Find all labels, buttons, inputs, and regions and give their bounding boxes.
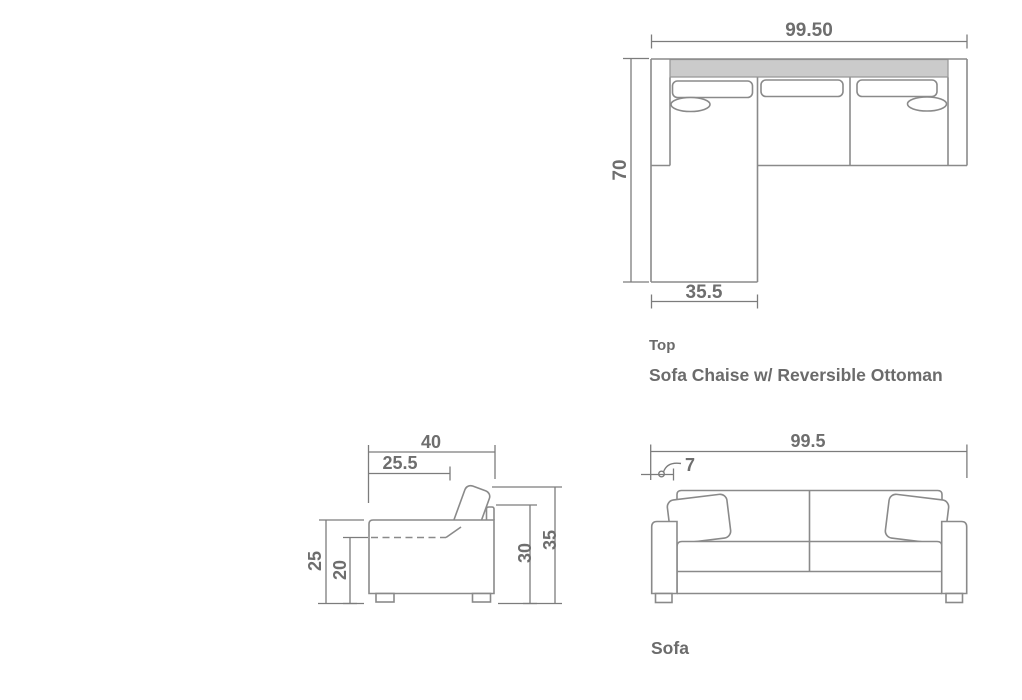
toss-pillow-left — [671, 98, 710, 112]
dim-side-back-height: 30 — [496, 505, 537, 604]
front-view-feet — [656, 594, 963, 603]
dim-label-seat-depth: 25.5 — [382, 453, 417, 473]
dim-label-overall-height: 35 — [540, 530, 560, 550]
leader-curve — [664, 463, 682, 472]
top-view-toss-pillows — [671, 97, 947, 112]
dim-front-overall-width: 99.5 — [651, 431, 967, 480]
top-view: 99.50 70 35.5 Top Sofa Chaise w/ Reversi… — [610, 20, 967, 385]
dim-label-top-depth: 70 — [610, 159, 631, 180]
side-foot-front — [376, 594, 394, 603]
dim-top-chaise-width: 35.5 — [652, 282, 758, 309]
dim-label-arm-height: 25 — [305, 551, 325, 571]
dim-label-back-height: 30 — [515, 543, 535, 563]
side-view: 40 25.5 25 20 30 — [305, 432, 562, 604]
dim-side-seat-depth: 25.5 — [369, 453, 451, 481]
side-view-feet — [376, 594, 491, 603]
front-view: 99.5 7 Sofa — [641, 431, 967, 658]
dim-label-arm-width: 7 — [685, 455, 695, 475]
dim-side-seat-height: 20 — [330, 538, 368, 604]
furniture-dimension-drawing: 99.50 70 35.5 Top Sofa Chaise w/ Reversi… — [0, 0, 1022, 700]
front-foot-right — [946, 594, 963, 603]
top-view-caption: Top — [649, 337, 675, 354]
side-foot-back — [473, 594, 491, 603]
toss-pillow-right — [908, 97, 947, 111]
back-cushion-right — [857, 80, 937, 97]
side-view-back-frame — [487, 507, 495, 520]
top-view-back-panel — [670, 60, 948, 78]
back-cushion-left — [673, 81, 753, 98]
dim-label-side-depth: 40 — [421, 432, 441, 452]
back-cushion-middle — [761, 80, 843, 97]
front-view-caption: Sofa — [651, 638, 689, 658]
front-pillow-right — [885, 494, 950, 545]
dim-label-front-width: 99.5 — [790, 431, 825, 451]
dim-front-arm-width: 7 — [641, 455, 695, 481]
drawing-svg: 99.50 70 35.5 Top Sofa Chaise w/ Reversi… — [0, 0, 1022, 700]
side-view-body — [369, 520, 494, 594]
dim-top-overall-depth: 70 — [610, 59, 649, 283]
dim-top-overall-width: 99.50 — [652, 20, 968, 49]
front-view-base — [677, 572, 942, 594]
top-view-back-cushions — [673, 80, 938, 98]
front-view-arm-left — [652, 522, 677, 594]
front-view-arm-right — [942, 522, 967, 594]
dim-label-top-width: 99.50 — [785, 20, 833, 41]
front-foot-left — [656, 594, 673, 603]
dim-label-seat-height: 20 — [330, 560, 350, 580]
product-title: Sofa Chaise w/ Reversible Ottoman — [649, 365, 943, 385]
dim-label-chaise-width: 35.5 — [686, 282, 723, 303]
